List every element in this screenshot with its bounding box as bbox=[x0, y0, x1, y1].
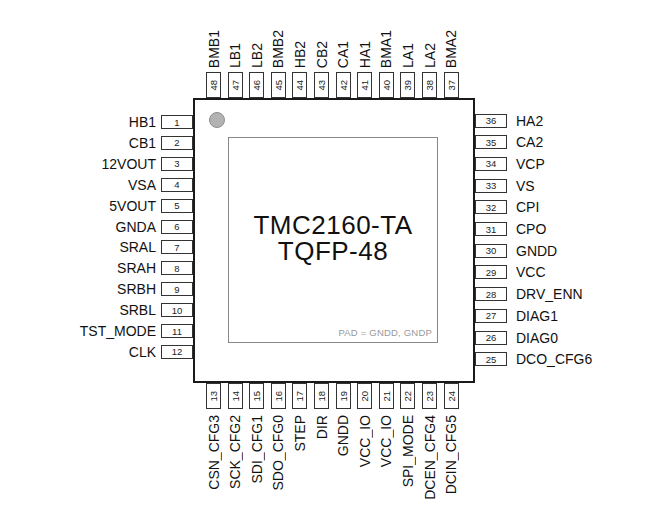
pin-16-box: 16 bbox=[271, 383, 286, 409]
pin-13-label: CSN_CFG3 bbox=[207, 415, 221, 490]
pin-number: 9 bbox=[174, 284, 179, 295]
pad-note: PAD = GNDD, GNDP bbox=[338, 327, 432, 338]
pin-number: 19 bbox=[338, 391, 349, 402]
pin-number: 28 bbox=[486, 289, 497, 300]
pin-47-label: LB1 bbox=[228, 43, 242, 68]
pin-27-box: 27 bbox=[475, 309, 507, 323]
pin-44-label: HB2 bbox=[293, 41, 307, 68]
pin-20-box: 20 bbox=[357, 383, 372, 409]
pin-number: 17 bbox=[294, 391, 305, 402]
pin-26-label: DIAG0 bbox=[516, 330, 558, 346]
pin-27-label: DIAG1 bbox=[516, 308, 558, 324]
pin-number: 4 bbox=[174, 179, 179, 190]
pin-25-label: DCO_CFG6 bbox=[516, 351, 592, 367]
pin-39-box: 39 bbox=[400, 72, 415, 98]
pin-3-label: 12VOUT bbox=[102, 156, 156, 172]
pin-43-label: CB2 bbox=[315, 41, 329, 68]
pin1-marker-icon bbox=[209, 112, 225, 128]
pin-number: 2 bbox=[174, 137, 179, 148]
chip-inner-outline: TMC2160-TA TQFP-48 PAD = GNDD, GNDP bbox=[228, 137, 438, 343]
pin-number: 30 bbox=[486, 245, 497, 256]
pin-9-label: SRBH bbox=[117, 281, 156, 297]
pin-31-label: CPO bbox=[516, 221, 546, 237]
pin-47-box: 47 bbox=[228, 72, 243, 98]
pin-30-box: 30 bbox=[475, 244, 507, 258]
pin-21-box: 21 bbox=[379, 383, 394, 409]
pin-6-box: 6 bbox=[161, 220, 193, 234]
pin-number: 31 bbox=[486, 224, 497, 235]
pin-number: 35 bbox=[486, 137, 497, 148]
pin-36-label: HA2 bbox=[516, 113, 543, 129]
pin-30-label: GNDD bbox=[516, 243, 557, 259]
pin-22-label: SPI_MODE bbox=[401, 415, 415, 487]
pin-number: 16 bbox=[273, 391, 284, 402]
pin-37-box: 37 bbox=[444, 72, 459, 98]
pin-37-label: BMA2 bbox=[444, 30, 458, 68]
pin-13-box: 13 bbox=[206, 383, 221, 409]
pin-2-box: 2 bbox=[161, 136, 193, 150]
pin-1-label: HB1 bbox=[129, 114, 156, 130]
chip-package: TQFP-48 bbox=[229, 238, 437, 264]
pin-number: 45 bbox=[273, 80, 284, 91]
pin-34-label: VCP bbox=[516, 156, 545, 172]
pin-29-label: VCC bbox=[516, 264, 546, 280]
pin-number: 11 bbox=[172, 326, 182, 337]
pin-number: 13 bbox=[208, 391, 219, 402]
pin-35-box: 35 bbox=[475, 135, 507, 149]
pin-23-box: 23 bbox=[422, 383, 437, 409]
pin-number: 10 bbox=[172, 305, 183, 316]
chip-body: TMC2160-TA TQFP-48 PAD = GNDD, GNDP bbox=[193, 98, 475, 383]
pin-45-box: 45 bbox=[271, 72, 286, 98]
pin-41-label: HA1 bbox=[358, 41, 372, 68]
pin-26-box: 26 bbox=[475, 331, 507, 345]
pin-12-box: 12 bbox=[161, 345, 193, 359]
pin-38-label: LA2 bbox=[423, 43, 437, 68]
pin-number: 37 bbox=[446, 80, 457, 91]
pin-number: 3 bbox=[174, 158, 179, 169]
pin-9-box: 9 bbox=[161, 282, 193, 296]
pin-number: 26 bbox=[486, 332, 497, 343]
pin-35-label: CA2 bbox=[516, 134, 543, 150]
pin-8-box: 8 bbox=[161, 261, 193, 275]
chip-name: TMC2160-TA bbox=[229, 212, 437, 238]
pin-28-box: 28 bbox=[475, 287, 507, 301]
pin-number: 27 bbox=[486, 310, 497, 321]
pin-48-label: BMB1 bbox=[207, 30, 221, 68]
pin-number: 44 bbox=[294, 80, 305, 91]
pin-14-label: SCK_CFG2 bbox=[228, 415, 242, 489]
pin-34-box: 34 bbox=[475, 157, 507, 171]
pin-number: 48 bbox=[208, 80, 219, 91]
pin-number: 33 bbox=[486, 180, 497, 191]
pin-number: 12 bbox=[172, 346, 183, 357]
pin-20-label: VCC_IO bbox=[358, 415, 372, 467]
pin-5-box: 5 bbox=[161, 199, 193, 213]
pin-number: 15 bbox=[251, 391, 262, 402]
pin-number: 43 bbox=[316, 80, 327, 91]
pin-number: 25 bbox=[486, 354, 497, 365]
pin-6-label: GNDA bbox=[116, 219, 156, 235]
pin-number: 38 bbox=[424, 80, 435, 91]
pin-40-box: 40 bbox=[379, 72, 394, 98]
pin-10-box: 10 bbox=[161, 303, 193, 317]
pin-19-box: 19 bbox=[336, 383, 351, 409]
pin-41-box: 41 bbox=[357, 72, 372, 98]
pin-11-label: TST_MODE bbox=[80, 323, 156, 339]
pin-42-box: 42 bbox=[336, 72, 351, 98]
pin-number: 7 bbox=[174, 242, 179, 253]
pin-14-box: 14 bbox=[228, 383, 243, 409]
pin-23-label: DCEN_CFG4 bbox=[423, 415, 437, 500]
pin-40-label: BMA1 bbox=[379, 30, 393, 68]
pin-number: 32 bbox=[486, 202, 497, 213]
pin-4-label: VSA bbox=[128, 177, 156, 193]
pin-number: 18 bbox=[316, 391, 327, 402]
pin-7-box: 7 bbox=[161, 240, 193, 254]
pinout-diagram: TMC2160-TA TQFP-48 PAD = GNDD, GNDP 1HB1… bbox=[0, 0, 663, 532]
pin-18-label: DIR bbox=[315, 415, 329, 439]
pin-33-label: VS bbox=[516, 178, 535, 194]
pin-39-label: LA1 bbox=[401, 43, 415, 68]
pin-number: 21 bbox=[381, 391, 392, 402]
pin-1-box: 1 bbox=[161, 115, 193, 129]
pin-number: 34 bbox=[486, 158, 497, 169]
pin-32-box: 32 bbox=[475, 200, 507, 214]
pin-3-box: 3 bbox=[161, 157, 193, 171]
pin-2-label: CB1 bbox=[129, 135, 156, 151]
pin-32-label: CPI bbox=[516, 199, 539, 215]
pin-46-box: 46 bbox=[249, 72, 264, 98]
pin-number: 24 bbox=[446, 391, 457, 402]
pin-19-label: GNDD bbox=[336, 415, 350, 456]
pin-number: 8 bbox=[174, 263, 179, 274]
pin-17-box: 17 bbox=[292, 383, 307, 409]
pin-15-box: 15 bbox=[249, 383, 264, 409]
pin-number: 41 bbox=[359, 80, 370, 91]
pin-number: 29 bbox=[486, 267, 497, 278]
pin-number: 36 bbox=[486, 115, 497, 126]
pin-25-box: 25 bbox=[475, 352, 507, 366]
pin-33-box: 33 bbox=[475, 179, 507, 193]
pin-number: 5 bbox=[174, 200, 179, 211]
pin-46-label: LB2 bbox=[250, 43, 264, 68]
pin-31-box: 31 bbox=[475, 222, 507, 236]
pin-18-box: 18 bbox=[314, 383, 329, 409]
pin-number: 20 bbox=[359, 391, 370, 402]
pin-36-box: 36 bbox=[475, 114, 507, 128]
pin-number: 1 bbox=[174, 117, 179, 128]
pin-number: 6 bbox=[174, 221, 179, 232]
pin-number: 23 bbox=[424, 391, 435, 402]
pin-28-label: DRV_ENN bbox=[516, 286, 583, 302]
pin-16-label: SDO_CFG0 bbox=[271, 415, 285, 490]
pin-45-label: BMB2 bbox=[271, 30, 285, 68]
pin-number: 46 bbox=[251, 80, 262, 91]
pin-22-box: 22 bbox=[400, 383, 415, 409]
pin-12-label: CLK bbox=[129, 344, 156, 360]
pin-5-label: 5VOUT bbox=[109, 198, 156, 214]
pin-44-box: 44 bbox=[292, 72, 307, 98]
pin-48-box: 48 bbox=[206, 72, 221, 98]
pin-29-box: 29 bbox=[475, 265, 507, 279]
pin-number: 39 bbox=[402, 80, 413, 91]
chip-title: TMC2160-TA TQFP-48 bbox=[229, 212, 437, 264]
pin-4-box: 4 bbox=[161, 178, 193, 192]
pin-17-label: STEP bbox=[293, 415, 307, 452]
pin-8-label: SRAH bbox=[117, 260, 156, 276]
pin-number: 14 bbox=[230, 391, 241, 402]
pin-38-box: 38 bbox=[422, 72, 437, 98]
pin-24-label: DCIN_CFG5 bbox=[444, 415, 458, 494]
pin-number: 22 bbox=[402, 391, 413, 402]
pin-42-label: CA1 bbox=[336, 41, 350, 68]
pin-24-box: 24 bbox=[444, 383, 459, 409]
pin-21-label: VCC_IO bbox=[379, 415, 393, 467]
pin-10-label: SRBL bbox=[119, 302, 156, 318]
pin-11-box: 11 bbox=[161, 324, 193, 338]
pin-15-label: SDI_CFG1 bbox=[250, 415, 264, 483]
pin-number: 40 bbox=[381, 80, 392, 91]
pin-43-box: 43 bbox=[314, 72, 329, 98]
pin-number: 42 bbox=[338, 80, 349, 91]
pin-7-label: SRAL bbox=[119, 239, 156, 255]
pin-number: 47 bbox=[230, 80, 241, 91]
